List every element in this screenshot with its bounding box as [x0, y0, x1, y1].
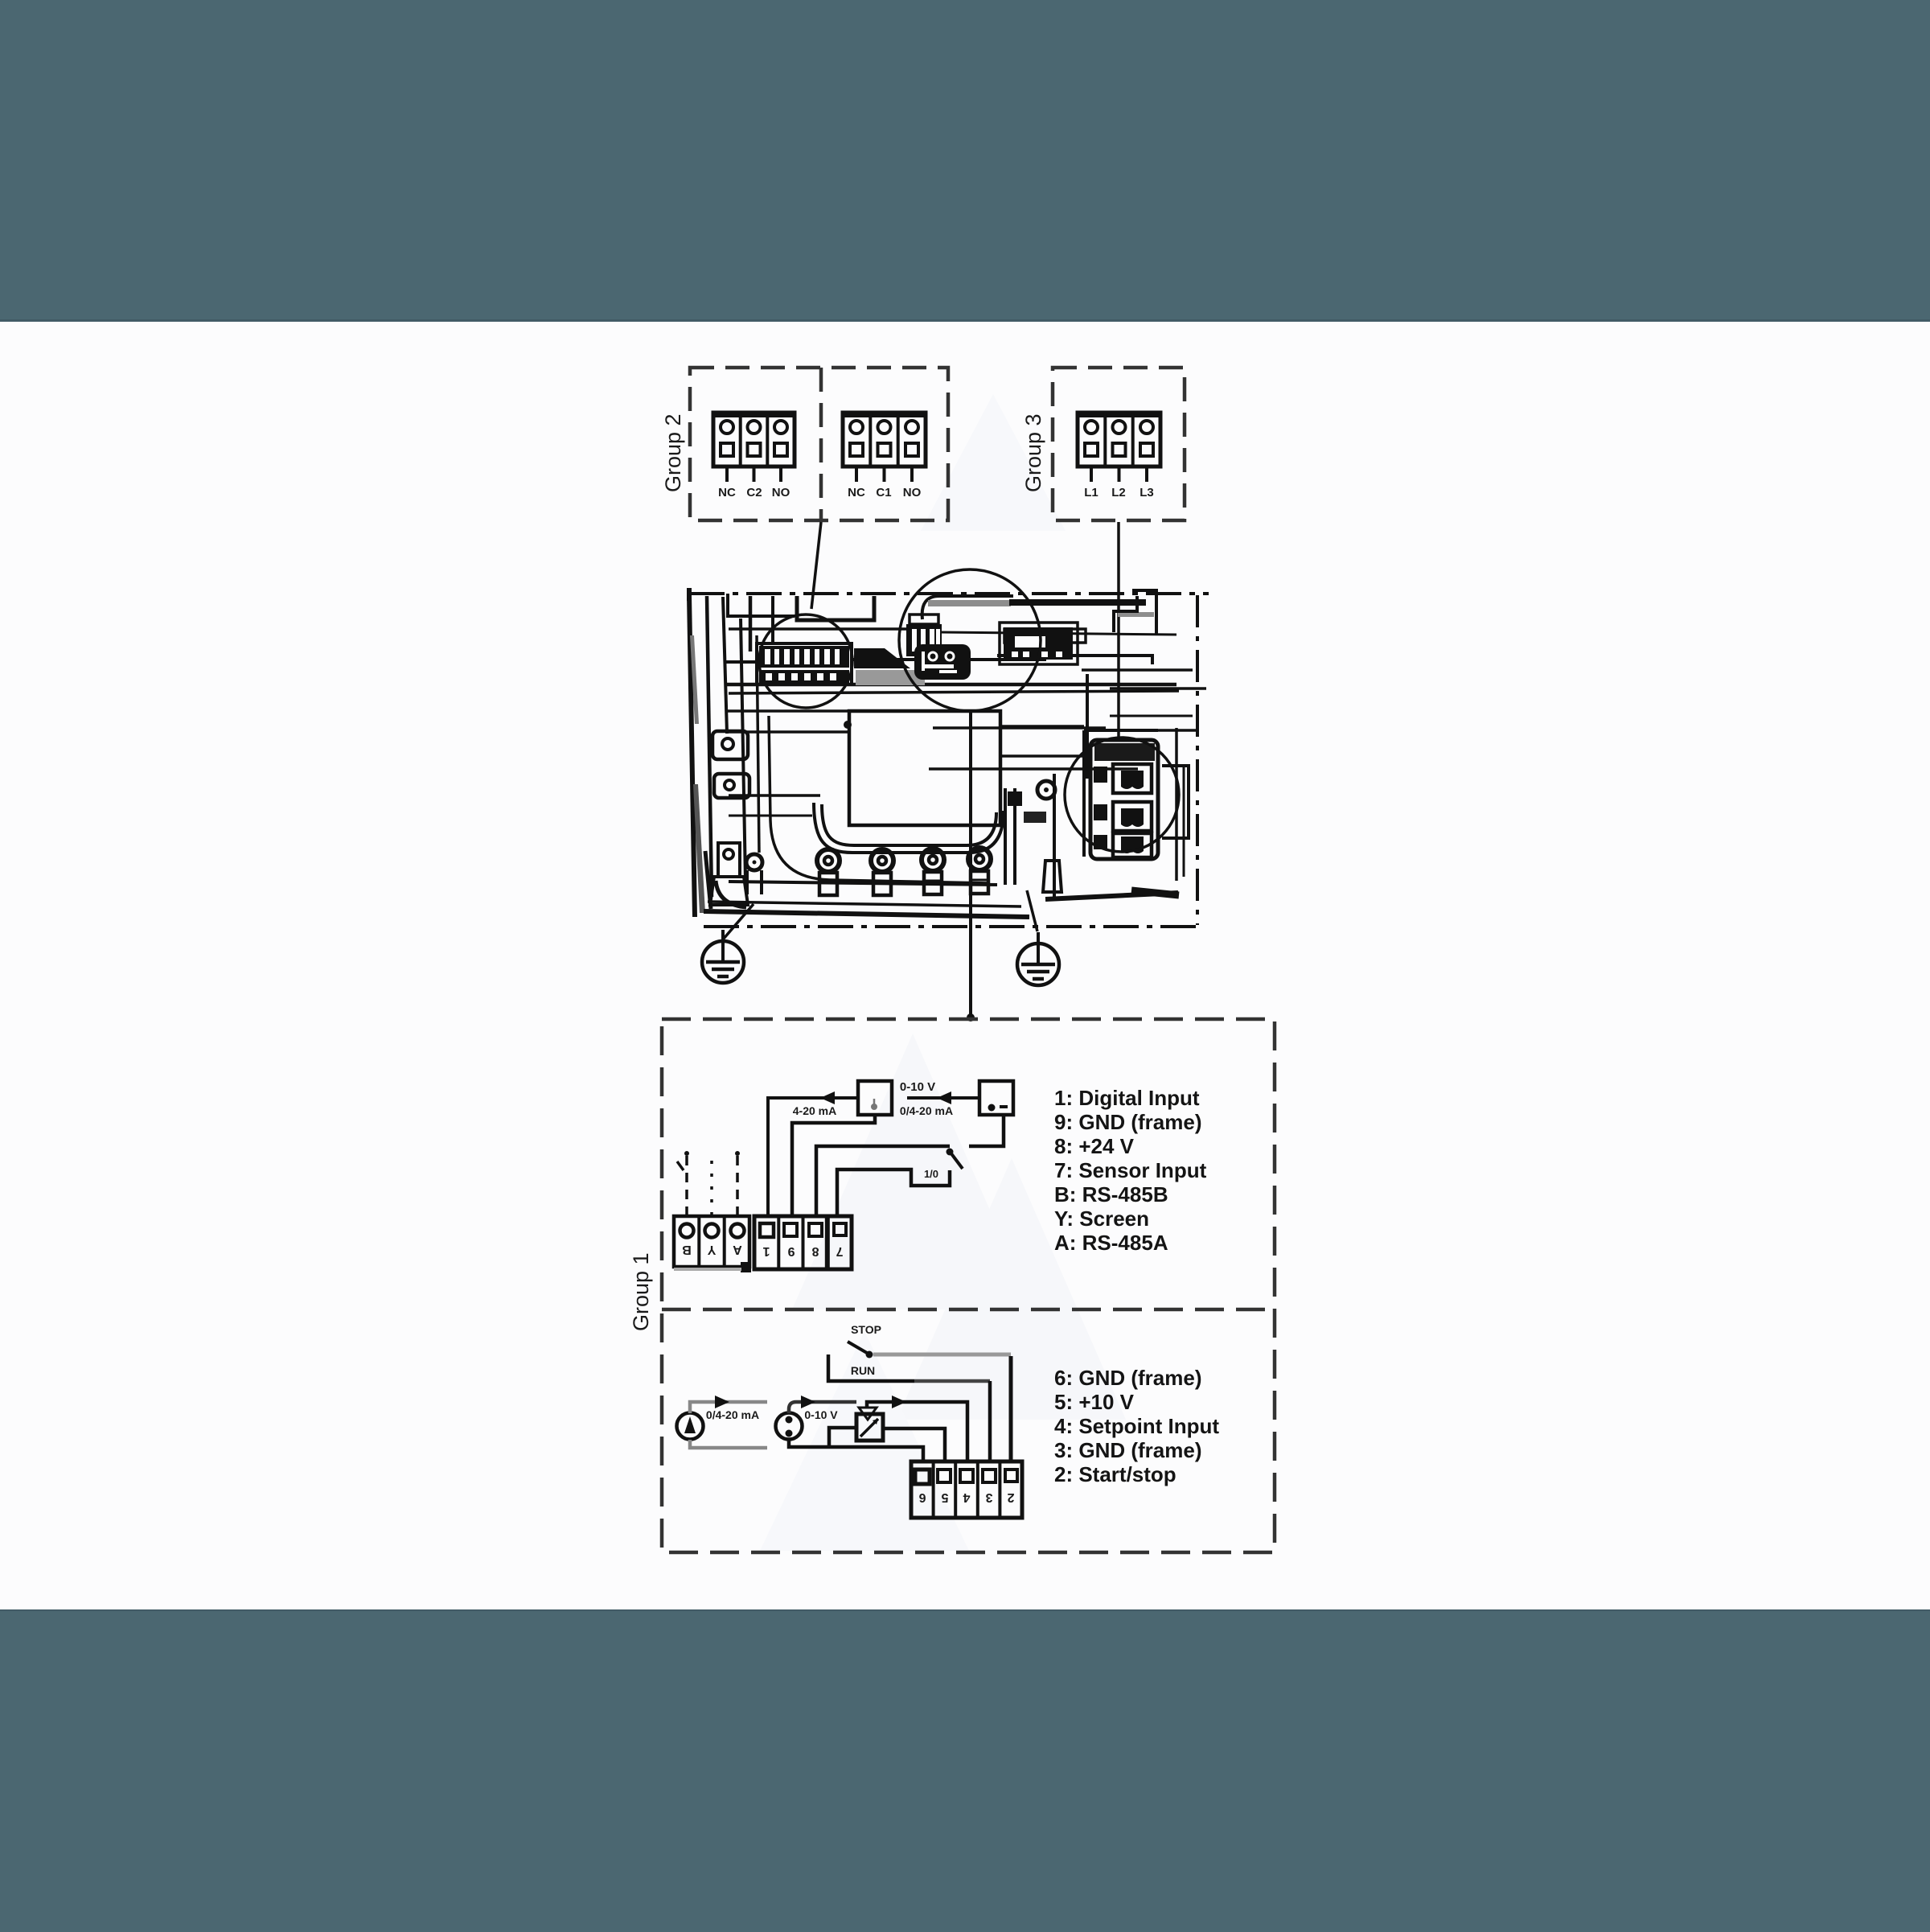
svg-text:L2: L2: [1111, 486, 1126, 499]
svg-text:0/4-20 mA: 0/4-20 mA: [706, 1408, 759, 1421]
svg-text:C1: C1: [876, 486, 891, 499]
svg-text:A: A: [733, 1243, 742, 1256]
svg-text:C2: C2: [746, 486, 762, 499]
svg-text:Group 3: Group 3: [1021, 413, 1045, 492]
svg-text:2: 2: [1007, 1490, 1014, 1504]
svg-text:Group 1: Group 1: [629, 1252, 653, 1331]
svg-text:0/4-20 mA: 0/4-20 mA: [900, 1104, 953, 1117]
svg-text:B: RS-485B: B: RS-485B: [1054, 1182, 1168, 1206]
svg-text:STOP: STOP: [851, 1323, 881, 1336]
svg-text:Y: Y: [707, 1243, 716, 1256]
svg-text:1/0: 1/0: [924, 1168, 938, 1180]
svg-text:L1: L1: [1084, 486, 1098, 499]
svg-text:NC: NC: [718, 486, 736, 499]
svg-text:RUN: RUN: [851, 1364, 875, 1377]
svg-text:7: 7: [836, 1244, 843, 1258]
svg-text:8: 8: [811, 1244, 819, 1258]
svg-text:3: GND (frame): 3: GND (frame): [1054, 1438, 1201, 1462]
svg-text:7: Sensor Input: 7: Sensor Input: [1054, 1158, 1207, 1182]
svg-text:5: +10 V: 5: +10 V: [1054, 1390, 1135, 1414]
svg-text:A: RS-485A: A: RS-485A: [1054, 1231, 1168, 1255]
svg-text:0-10 V: 0-10 V: [900, 1080, 935, 1094]
svg-text:L3: L3: [1140, 486, 1154, 499]
svg-text:Y: Screen: Y: Screen: [1054, 1206, 1149, 1231]
svg-text:B: B: [682, 1243, 692, 1256]
svg-text:3: 3: [985, 1490, 992, 1504]
svg-text:4: Setpoint Input: 4: Setpoint Input: [1054, 1414, 1219, 1438]
svg-text:1: Digital Input: 1: Digital Input: [1054, 1086, 1200, 1110]
svg-text:8: +24 V: 8: +24 V: [1054, 1134, 1135, 1158]
svg-text:0-10 V: 0-10 V: [804, 1408, 838, 1421]
svg-text:6: GND (frame): 6: GND (frame): [1054, 1366, 1201, 1390]
svg-text:6: 6: [918, 1490, 926, 1504]
svg-text:4-20 mA: 4-20 mA: [793, 1104, 836, 1117]
svg-text:4: 4: [963, 1490, 970, 1504]
svg-text:2: Start/stop: 2: Start/stop: [1054, 1462, 1176, 1486]
svg-text:NO: NO: [903, 486, 922, 499]
svg-text:NO: NO: [772, 486, 790, 499]
svg-text:9: 9: [787, 1244, 795, 1258]
svg-text:Group 2: Group 2: [661, 413, 685, 492]
svg-text:1: 1: [762, 1244, 770, 1258]
svg-text:9: GND (frame): 9: GND (frame): [1054, 1110, 1201, 1134]
svg-text:NC: NC: [848, 486, 865, 499]
svg-text:5: 5: [941, 1490, 948, 1504]
